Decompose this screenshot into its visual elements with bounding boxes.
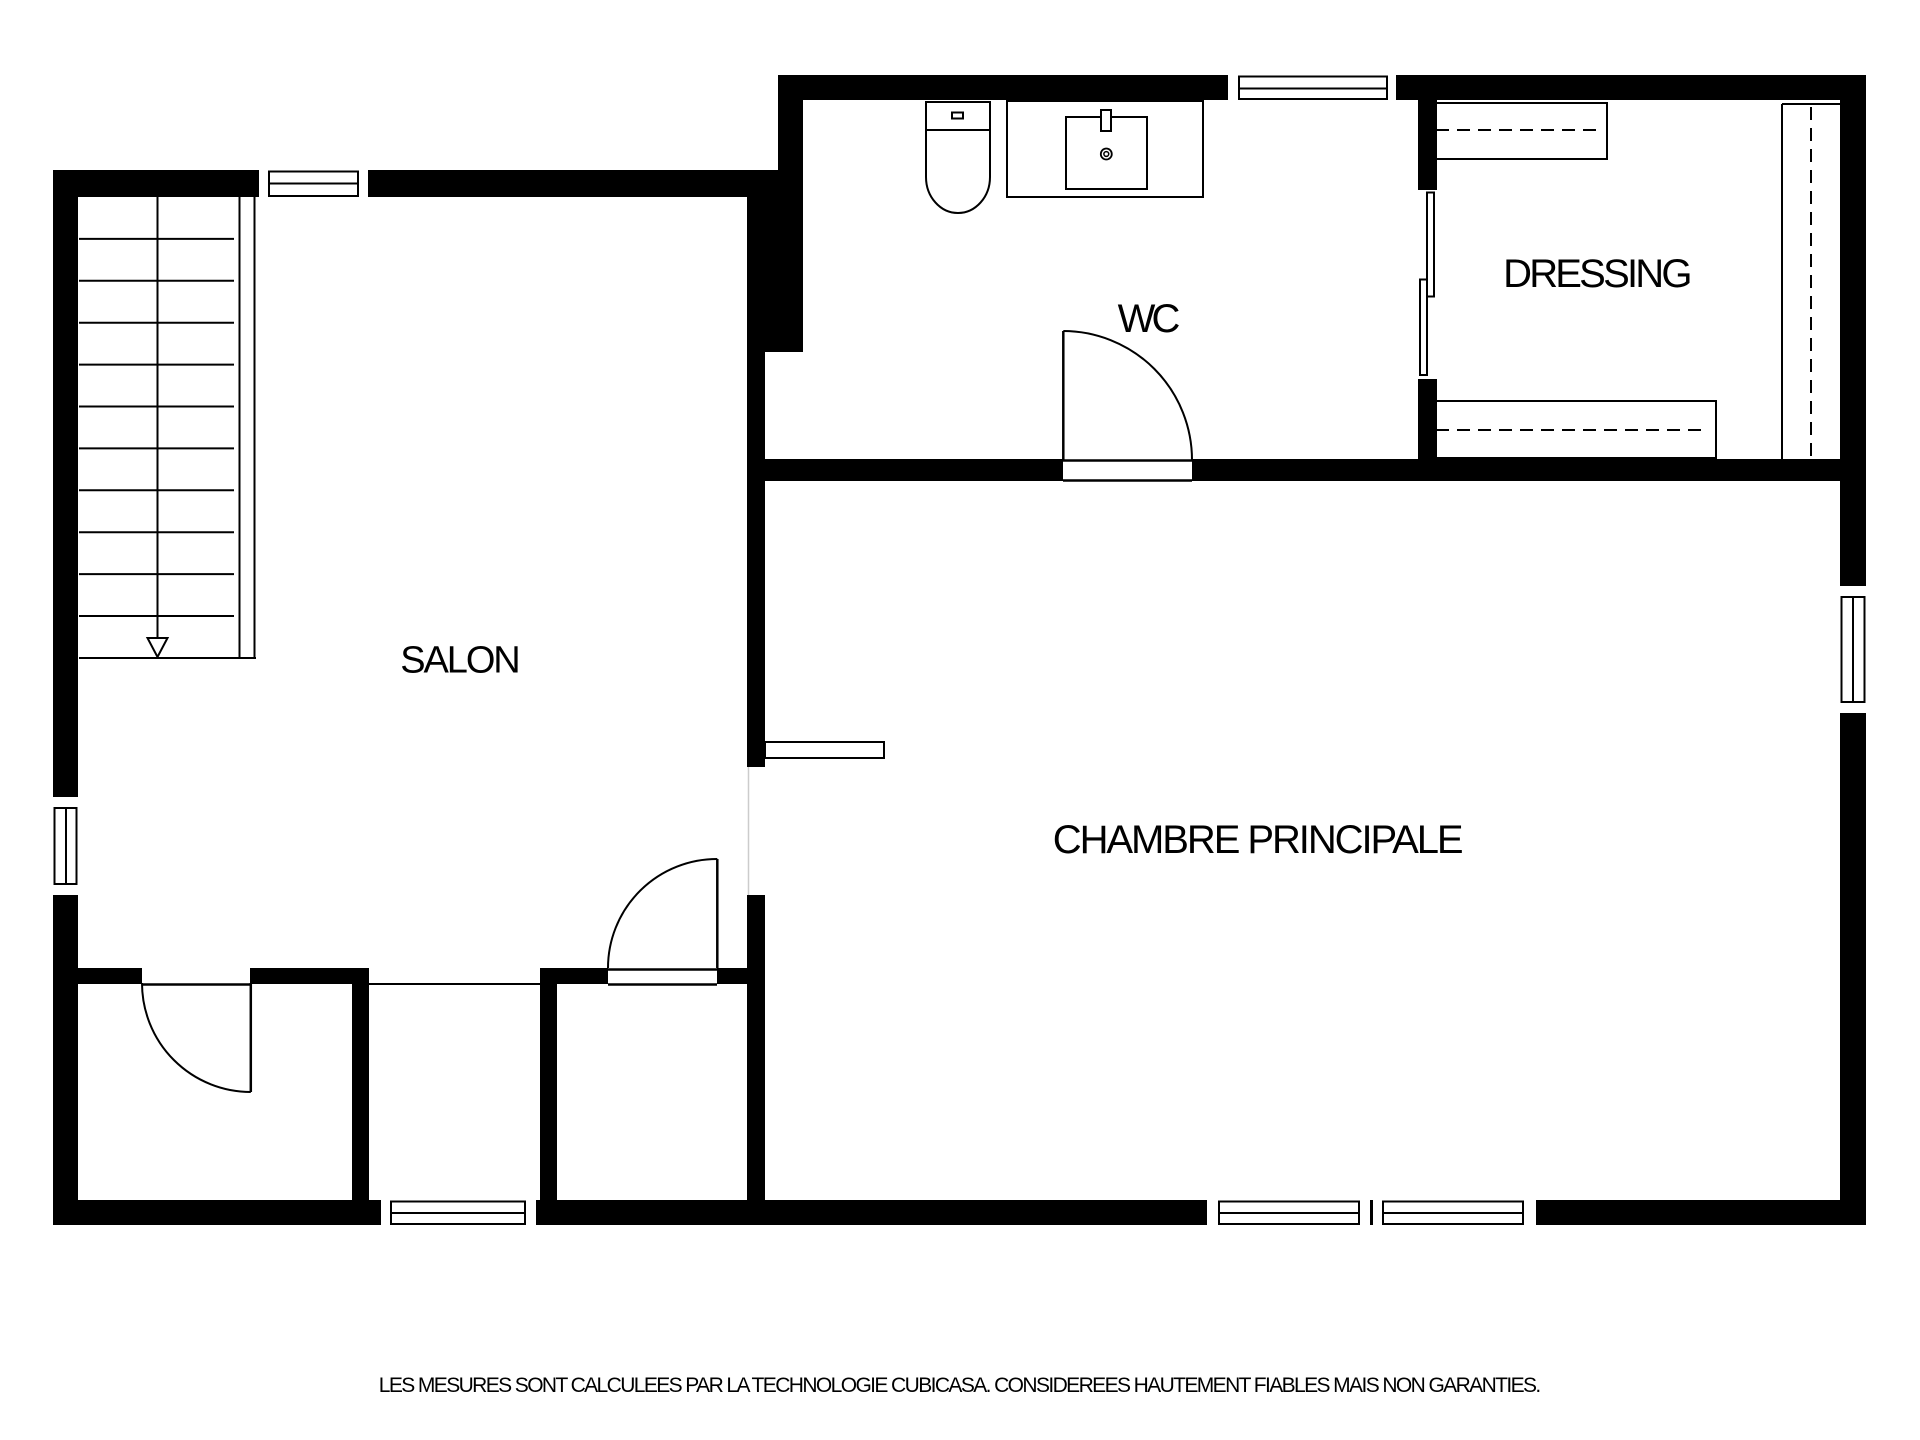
svg-text:DRESSING: DRESSING — [1503, 252, 1692, 296]
svg-text:LES MESURES SONT CALCULEES PAR: LES MESURES SONT CALCULEES PAR LA TECHNO… — [379, 1374, 1541, 1397]
svg-text:SALON: SALON — [400, 640, 521, 682]
svg-text:WC: WC — [1118, 297, 1181, 341]
svg-text:CHAMBRE PRINCIPALE: CHAMBRE PRINCIPALE — [1053, 818, 1464, 862]
